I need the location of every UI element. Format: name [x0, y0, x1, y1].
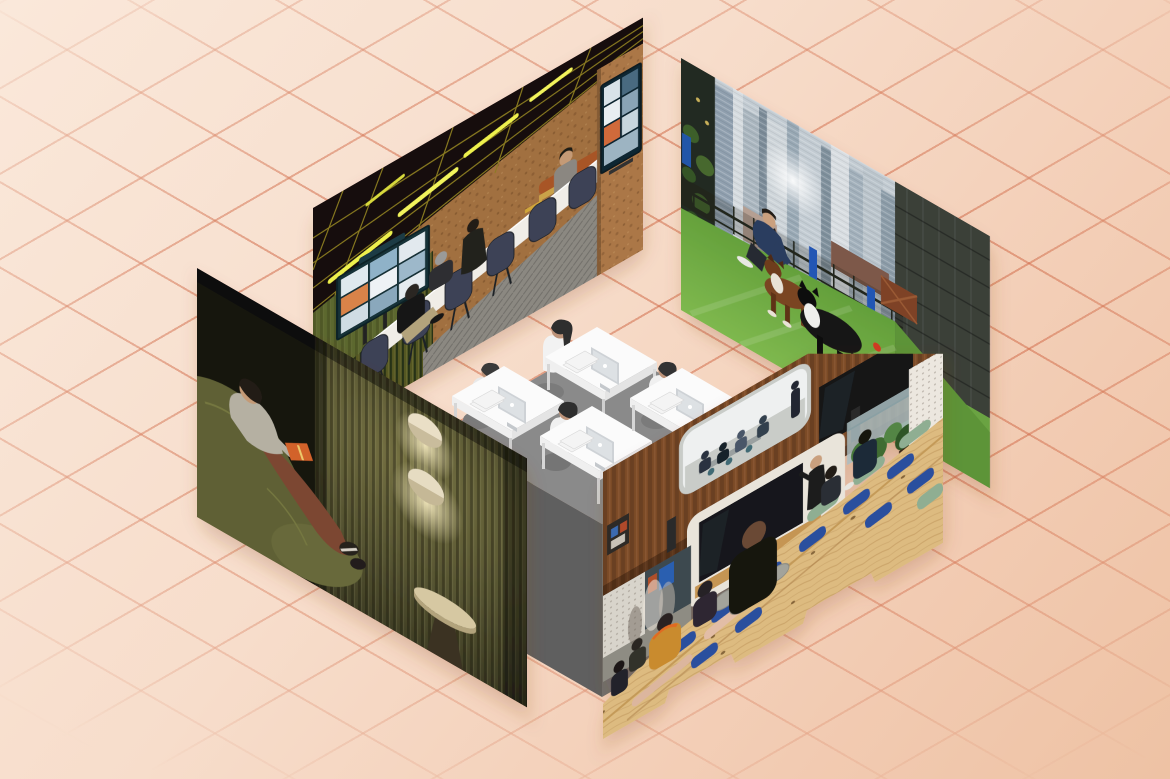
collage-scene: [0, 0, 1170, 779]
collage-canvas: [0, 0, 1170, 779]
blue-sign: [682, 133, 691, 168]
